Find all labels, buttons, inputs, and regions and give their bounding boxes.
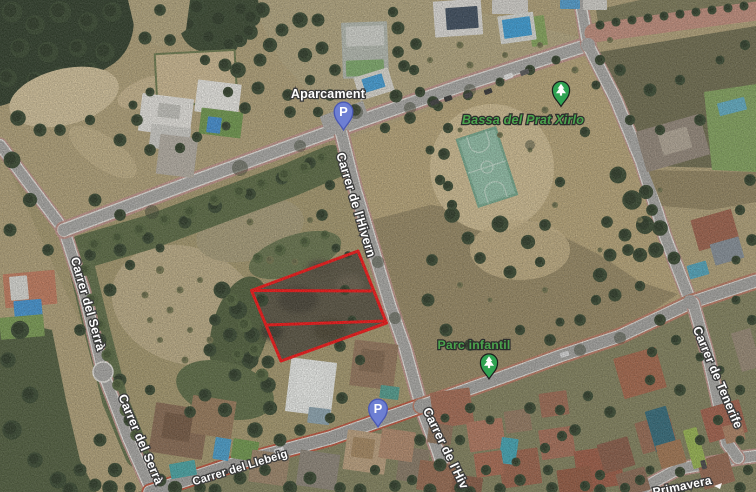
svg-text:P: P <box>374 401 383 416</box>
svg-text:Bassa del Prat Xirlo: Bassa del Prat Xirlo <box>462 113 584 127</box>
svg-text:Aparcament: Aparcament <box>291 87 366 101</box>
svg-text:P: P <box>339 104 348 119</box>
svg-text:Parc infantil: Parc infantil <box>438 338 511 352</box>
